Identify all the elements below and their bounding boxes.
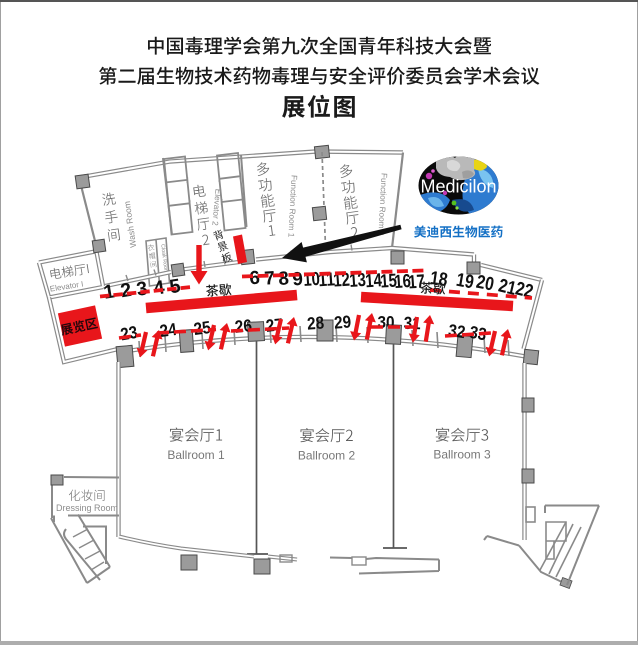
svg-text:7: 7 bbox=[264, 268, 276, 290]
svg-text:Ballroom 2: Ballroom 2 bbox=[298, 449, 356, 463]
svg-text:Ballroom 3: Ballroom 3 bbox=[433, 448, 491, 462]
svg-text:6: 6 bbox=[249, 268, 261, 290]
svg-text:Medicilon: Medicilon bbox=[420, 177, 496, 197]
svg-text:Dressing Room: Dressing Room bbox=[56, 503, 118, 513]
svg-text:19: 19 bbox=[455, 270, 476, 294]
svg-text:18: 18 bbox=[429, 268, 449, 291]
svg-text:Ballroom 1: Ballroom 1 bbox=[167, 448, 225, 462]
svg-text:25: 25 bbox=[192, 317, 212, 339]
svg-text:8: 8 bbox=[278, 268, 290, 290]
svg-text:17: 17 bbox=[408, 271, 426, 293]
svg-text:26: 26 bbox=[234, 315, 253, 337]
svg-text:31: 31 bbox=[403, 313, 421, 334]
svg-text:29: 29 bbox=[333, 311, 352, 332]
svg-text:30: 30 bbox=[378, 312, 395, 332]
svg-text:28: 28 bbox=[306, 312, 325, 333]
svg-text:32: 32 bbox=[447, 320, 467, 342]
